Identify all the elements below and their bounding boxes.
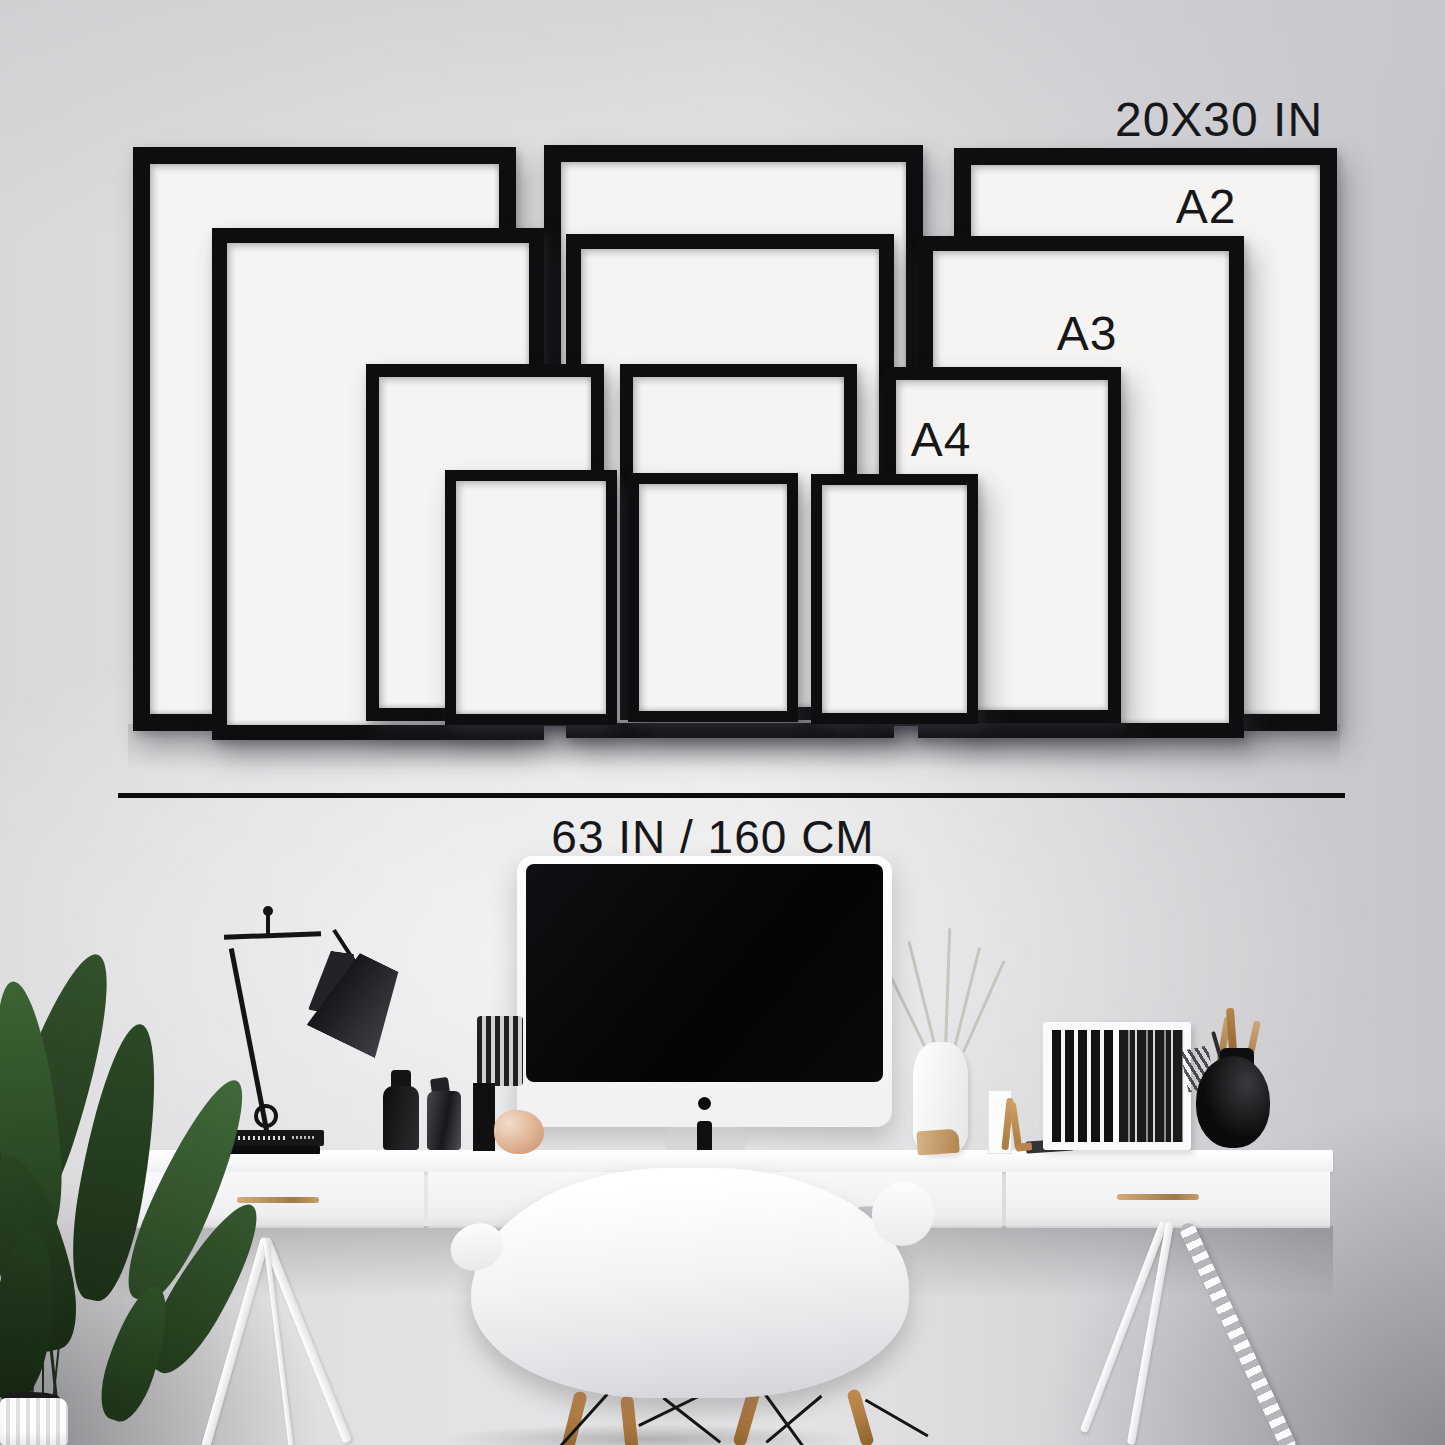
book-spine-text xyxy=(228,1136,286,1140)
monitor-logo-dot xyxy=(698,1097,711,1110)
wood-pieces xyxy=(916,1129,960,1156)
frame-a4-middle xyxy=(628,473,798,722)
size-label-20x30: 20X30 IN xyxy=(1115,96,1323,144)
glass-bottle xyxy=(427,1091,461,1150)
square-black-vase xyxy=(473,1083,495,1151)
file-slats-black xyxy=(1052,1030,1114,1142)
book-spine-text xyxy=(292,1136,316,1139)
drawer-handle-right xyxy=(1117,1194,1199,1200)
width-measure-line xyxy=(118,793,1345,798)
frame-size-guide-scene: 20X30 IN A2 A3 A4 63 IN / 160 CM xyxy=(0,0,1445,1445)
striped-glass-cup xyxy=(477,1016,523,1086)
desk-drawer-right xyxy=(1006,1172,1330,1228)
monitor xyxy=(517,856,892,1127)
size-label-a3: A3 xyxy=(1057,310,1118,358)
frame-a4-left xyxy=(445,470,617,725)
lamp-knob xyxy=(263,906,273,916)
lamp-base-book-lower xyxy=(224,1146,320,1154)
black-round-vase xyxy=(1196,1056,1270,1148)
peach-ornament xyxy=(494,1110,544,1154)
file-slats-striped xyxy=(1119,1030,1183,1142)
plant-pot xyxy=(0,1398,68,1445)
wedge-wood-tip xyxy=(1016,1142,1033,1152)
lamp-pin xyxy=(266,914,270,936)
size-label-a4: A4 xyxy=(911,416,972,464)
black-bottle xyxy=(383,1086,419,1150)
file-rack xyxy=(1043,1022,1191,1150)
size-label-a2: A2 xyxy=(1176,183,1237,231)
lamp-joint xyxy=(254,1104,278,1128)
drawer-handle-left xyxy=(237,1197,319,1203)
width-measurement-label: 63 IN / 160 CM xyxy=(551,814,874,860)
chair-shell xyxy=(471,1168,909,1398)
frame-a4-right xyxy=(811,474,978,724)
monitor-screen xyxy=(526,864,883,1082)
